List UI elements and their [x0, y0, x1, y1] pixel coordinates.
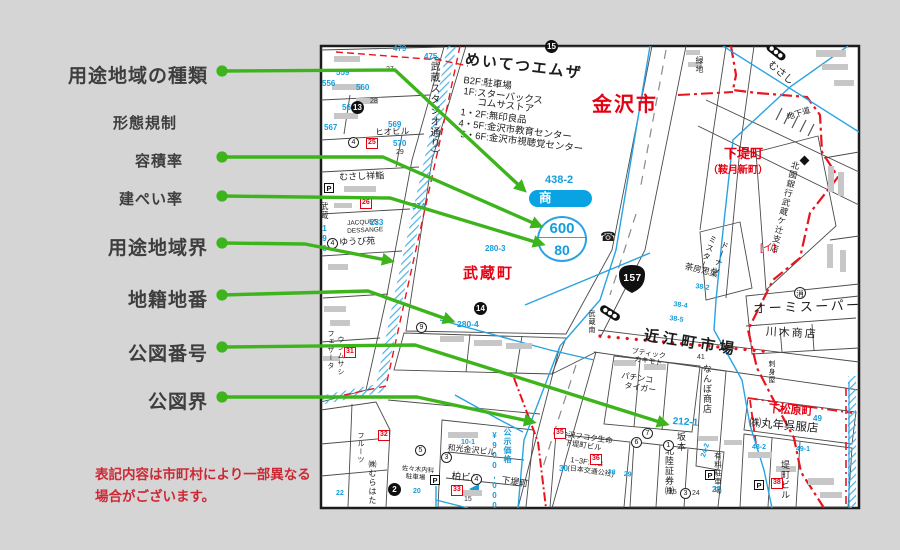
parcel-559: 559: [336, 69, 349, 77]
disclaimer-line-2: 場合がございます。: [95, 485, 215, 505]
kozu-number-14: 14: [474, 302, 487, 315]
poi-sakamoto: 坂本: [676, 432, 685, 452]
kozu-number-13: 13: [351, 101, 364, 114]
parcel-196: 196: [320, 224, 328, 254]
parcel-280-4: 280-4: [457, 320, 479, 329]
parcel-569: 569: [388, 121, 401, 129]
poi-murahata: ㈱むらはた: [368, 460, 376, 505]
poi-musashi-sushi: むさし祥鮨: [339, 171, 384, 182]
parcel-49: 49: [813, 415, 822, 423]
legend-item-kozu-boundary: 公図界: [148, 387, 208, 414]
poi-feather-1: フェザータ: [327, 330, 334, 370]
poi-omi-super: オーミスーパー: [753, 298, 862, 315]
city-name-label: 金沢市: [592, 95, 658, 115]
town-label-musashi: 武蔵町: [463, 266, 514, 281]
greenbelt-label: 緑地: [695, 56, 703, 74]
parcel-233: 233: [370, 219, 383, 227]
phone-booth-icon: ☎: [600, 230, 616, 243]
redbox-36: 36: [590, 454, 602, 465]
legend-item-floor-area-ratio: 容積率: [135, 150, 183, 171]
building-coverage-ratio-value: 80: [539, 242, 585, 258]
town-label-shimotsutsumi: 下堤町: [724, 147, 763, 160]
plot-24: 24: [692, 490, 700, 497]
zoning-district-badge: 商業: [529, 190, 592, 207]
parcel-438-2: 438-2: [545, 175, 573, 186]
parking-icon-3: P: [705, 470, 715, 480]
land-price-label: 公示価格: [503, 428, 511, 464]
parcel-30: 30: [559, 465, 568, 473]
signal-label-musashi-minami: 武蔵南: [588, 310, 595, 334]
poi-nanbo: なんぼ商店: [702, 364, 711, 414]
kozu-number-2: 2: [388, 483, 401, 496]
block-circle-9: 9: [416, 322, 427, 333]
block-circle-3a: 3: [441, 452, 452, 463]
parcel-10-1: 10-1: [461, 439, 475, 446]
parcel-574: 574: [412, 203, 425, 211]
plot-29: 29: [396, 149, 404, 156]
parcel-479: 479: [393, 45, 406, 53]
disclaimer-line-1: 表記内容は市町村により一部異なる: [95, 463, 311, 483]
parcel-48-2: 48-2: [752, 444, 766, 451]
floor-area-ratio-value: 600: [539, 220, 585, 237]
legend-item-zoning-type: 用途地域の種類: [68, 61, 208, 88]
parcel-567: 567: [324, 124, 337, 132]
redbox-31: 31: [344, 347, 356, 358]
town-label-kuratsuki: （鞍月新町）: [708, 166, 768, 176]
plot-28: 28: [370, 98, 378, 105]
musashi-vertical-label: 武蔵: [320, 202, 328, 220]
redbox-38: 38: [771, 478, 783, 489]
redbox-35: 35: [554, 428, 566, 439]
block-circle-4c: 4: [471, 474, 482, 485]
poi-sashimi: 刺身屋: [768, 360, 775, 384]
parcel-49-1: 49-1: [796, 446, 810, 453]
parking-icon-4: P: [754, 480, 764, 490]
redbox-26: 26: [360, 198, 372, 209]
block-circle-4b: 4: [327, 238, 338, 249]
redbox-32: 32: [378, 430, 390, 441]
parcel-23: 23: [712, 486, 721, 494]
parking-icon-2: P: [430, 475, 440, 485]
plot-27: 27: [386, 66, 394, 73]
parcel-556: 556: [322, 80, 335, 88]
parcel-560: 560: [356, 84, 369, 92]
parcel-212-1: 212-1: [672, 417, 698, 429]
block-circle-5: 5: [415, 445, 426, 456]
parcel-280-3: 280-3: [485, 245, 505, 253]
parking-icon-1: P: [324, 183, 334, 193]
redbox-25: 25: [366, 138, 378, 149]
legend-item-cadastral-number: 地籍地番: [128, 285, 208, 312]
ratio-circle: 600 80: [537, 216, 587, 262]
block-circle-7: 7: [642, 428, 653, 439]
parcel-570: 570: [393, 140, 406, 148]
redbox-33: 33: [451, 485, 463, 496]
legend-item-coverage-ratio: 建ぺい率: [119, 188, 183, 209]
poi-fruits: フルーツ: [357, 432, 364, 464]
plot-41: 41: [697, 354, 705, 361]
parcel-20: 20: [413, 488, 421, 495]
land-price-value: ¥900,000: [490, 431, 498, 511]
block-circle-3b: 3: [680, 488, 691, 499]
street-label-studio-dori: （武蔵スタジオ通り）: [428, 50, 438, 195]
block-circle-1: 1: [663, 440, 674, 451]
parcel-475: 475: [424, 53, 437, 61]
parcel-29: 29: [624, 471, 632, 479]
map-legend-page: 金沢市 武蔵町 下堤町 （鞍月新町） 下松原町 [イ] めいてつエムザ B2F:…: [0, 0, 900, 550]
plot-15: 15: [464, 496, 472, 503]
legend-item-kozu-number: 公図番号: [128, 339, 208, 366]
parcel-28: 28: [608, 469, 616, 477]
block-circle-4a: 4: [348, 137, 359, 148]
parcel-22: 22: [336, 490, 344, 497]
plot-25: 25: [669, 489, 677, 496]
ratio-divider: [537, 237, 587, 238]
poi-feather-2: ウンムサシ: [337, 336, 344, 376]
block-circle-6: 6: [631, 437, 642, 448]
legend-item-form-regulation: 形態規制: [113, 112, 177, 133]
route-number-label: 157: [620, 273, 645, 284]
kozu-number-15: 15: [545, 40, 558, 53]
poi-yubien: ゆうび苑: [339, 237, 375, 247]
legend-item-zoning-boundary: 用途地域界: [108, 233, 208, 260]
fire-station-icon: 消: [794, 287, 806, 299]
